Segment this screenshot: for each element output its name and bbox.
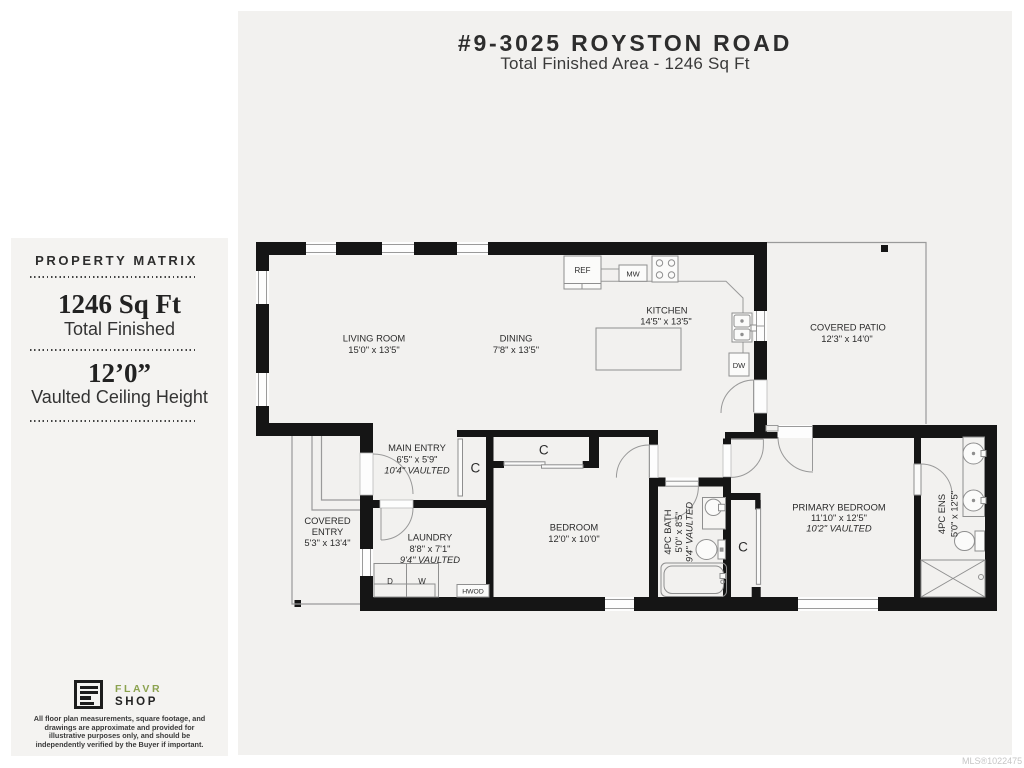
svg-text:5'0" x 12'5": 5'0" x 12'5"	[949, 491, 960, 537]
svg-text:12'3" x 14'0": 12'3" x 14'0"	[821, 333, 872, 344]
svg-text:D: D	[387, 577, 393, 586]
svg-text:LAUNDRY: LAUNDRY	[408, 532, 453, 543]
svg-text:12'0" x 10'0": 12'0" x 10'0"	[548, 533, 599, 544]
svg-text:C: C	[738, 540, 748, 555]
svg-text:14'5" x 13'5": 14'5" x 13'5"	[640, 316, 691, 327]
svg-text:COVERED PATIO: COVERED PATIO	[810, 322, 886, 333]
svg-text:15'0" x 13'5": 15'0" x 13'5"	[348, 344, 399, 355]
svg-text:ENTRY: ENTRY	[312, 526, 344, 537]
svg-text:5'0" x 8'5": 5'0" x 8'5"	[673, 512, 684, 553]
svg-text:DW: DW	[733, 361, 746, 370]
svg-text:C: C	[471, 461, 481, 476]
svg-text:C: C	[539, 443, 549, 458]
svg-text:KITCHEN: KITCHEN	[646, 305, 687, 316]
svg-text:10'4" VAULTED: 10'4" VAULTED	[384, 465, 450, 476]
svg-text:9'4" VAULTED: 9'4" VAULTED	[684, 502, 695, 562]
svg-text:5'3" x 13'4": 5'3" x 13'4"	[304, 537, 350, 548]
svg-text:HWOD: HWOD	[462, 589, 484, 596]
svg-text:11'10" x 12'5": 11'10" x 12'5"	[811, 512, 867, 523]
svg-text:9'4" VAULTED: 9'4" VAULTED	[400, 554, 460, 565]
svg-text:4PC BATH: 4PC BATH	[662, 509, 673, 554]
svg-text:8'8" x 7'1": 8'8" x 7'1"	[410, 543, 451, 554]
svg-text:MAIN ENTRY: MAIN ENTRY	[388, 442, 446, 453]
svg-text:LIVING ROOM: LIVING ROOM	[343, 333, 406, 344]
svg-text:DINING: DINING	[500, 333, 533, 344]
svg-text:W: W	[418, 577, 426, 586]
svg-text:MW: MW	[626, 270, 640, 279]
svg-text:4PC ENS: 4PC ENS	[936, 494, 947, 534]
svg-text:10'2" VAULTED: 10'2" VAULTED	[806, 523, 872, 534]
svg-text:7'8" x 13'5": 7'8" x 13'5"	[493, 344, 539, 355]
svg-text:COVERED: COVERED	[304, 515, 351, 526]
svg-text:REF: REF	[575, 266, 591, 275]
svg-text:BEDROOM: BEDROOM	[550, 522, 599, 533]
svg-text:6'5" x 5'9": 6'5" x 5'9"	[397, 453, 438, 464]
svg-text:PRIMARY BEDROOM: PRIMARY BEDROOM	[792, 502, 886, 513]
